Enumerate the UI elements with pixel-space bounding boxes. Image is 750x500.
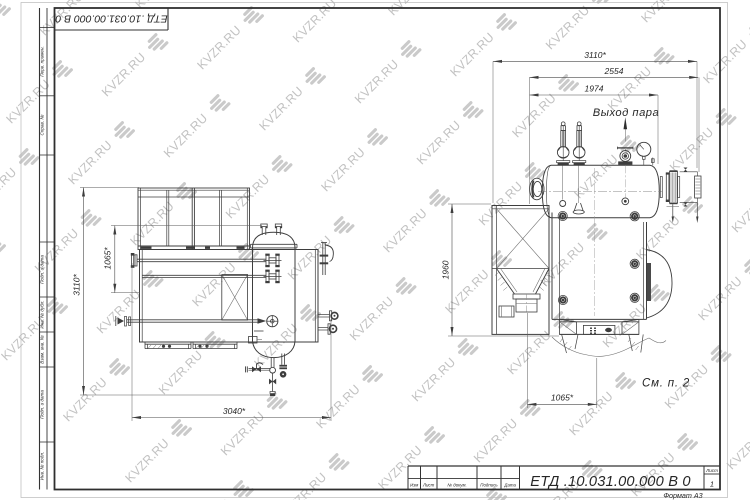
svg-text:1974: 1974 [585, 84, 604, 94]
svg-text:1960: 1960 [441, 260, 451, 279]
svg-text:Дата: Дата [503, 483, 516, 488]
svg-text:Выход пара: Выход пара [593, 107, 660, 119]
svg-text:1065*: 1065* [551, 393, 574, 403]
svg-text:Формат А3: Формат А3 [663, 491, 702, 500]
svg-text:3110*: 3110* [72, 274, 82, 296]
svg-text:3040*: 3040* [223, 406, 246, 416]
svg-text:Взам. инв. №: Взам. инв. № [40, 335, 45, 363]
svg-text:Подпись: Подпись [480, 483, 498, 488]
svg-text:Инв. № дубл.: Инв. № дубл. [40, 300, 45, 328]
svg-text:ЕТД .10.031.00.000 В 0: ЕТД .10.031.00.000 В 0 [530, 474, 690, 490]
svg-text:Подп. и дата: Подп. и дата [40, 390, 45, 419]
svg-text:1: 1 [710, 479, 714, 488]
svg-text:Справ. №: Справ. № [40, 115, 45, 136]
svg-text:3110*: 3110* [584, 50, 606, 60]
svg-text:2554: 2554 [604, 66, 624, 76]
svg-text:№ докум.: № докум. [447, 483, 466, 488]
svg-text:Изм: Изм [410, 483, 418, 488]
svg-text:ЕТД .10.031.00.000 В 0: ЕТД .10.031.00.000 В 0 [55, 13, 167, 25]
svg-text:Лист: Лист [705, 468, 718, 473]
svg-text:См. п. 2: См. п. 2 [642, 378, 690, 390]
svg-text:Инв. № подл.: Инв. № подл. [40, 452, 45, 481]
svg-text:1065*: 1065* [103, 247, 113, 270]
svg-text:Перв. примен.: Перв. примен. [40, 46, 45, 77]
svg-text:Подп. и дата: Подп. и дата [40, 255, 45, 284]
svg-text:Лист: Лист [422, 483, 435, 488]
